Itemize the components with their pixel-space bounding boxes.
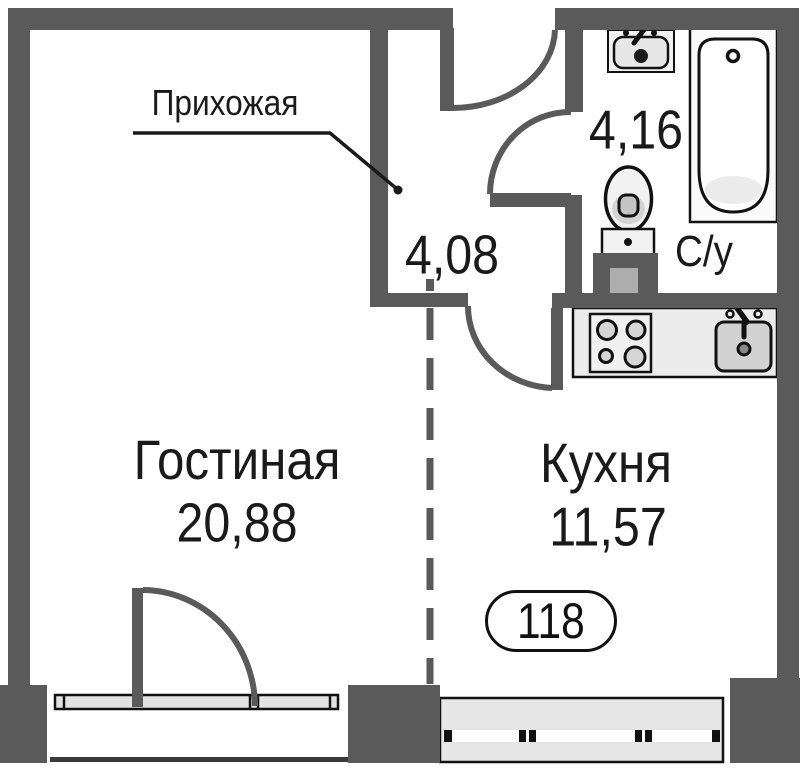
wall-outer-left: [8, 8, 30, 763]
kitchen-label: Кухня: [540, 435, 672, 491]
wall-bathroom-upper: [565, 28, 583, 112]
entrance-door: [440, 28, 555, 111]
wall-outer-right: [777, 8, 799, 763]
window-tick: [444, 730, 452, 742]
loggia-outline: [50, 757, 348, 762]
kitchen-door-leaf: [551, 308, 563, 390]
wall-hall-bottom: [370, 293, 468, 307]
bathroom-door: [490, 112, 571, 207]
washbasin-icon: [608, 27, 674, 72]
wall-outer-top-right: [555, 8, 799, 30]
entrance-door-arc: [453, 30, 555, 108]
window-tick: [529, 730, 536, 742]
pier-bottom-left: [0, 685, 47, 763]
pier-bottom-right: [730, 678, 800, 763]
bathroom-door-arc: [490, 112, 571, 194]
floor-plan-drawing: [0, 0, 807, 768]
window-tick: [635, 730, 642, 742]
kitchen-door: [468, 306, 563, 390]
apartment-number-badge: 118: [485, 590, 617, 652]
balcony-door: [132, 588, 255, 707]
living-room-area: 20,88: [176, 496, 297, 551]
pier-bottom-middle: [348, 685, 440, 763]
window-tick: [645, 730, 652, 742]
kitchen-area: 11,57: [549, 500, 667, 555]
stove-icon: [590, 314, 651, 372]
toilet-icon: [602, 167, 654, 255]
hallway-leader-dot: [394, 186, 403, 195]
kitchen-window: [440, 698, 723, 762]
bathroom-label: С/у: [675, 230, 733, 274]
wall-hall-partition: [370, 25, 388, 307]
living-room-label: Гостиная: [134, 432, 341, 488]
bathroom-area: 4,16: [589, 103, 683, 158]
vent-shaft-inner: [610, 268, 638, 296]
floor-plan: Прихожая 4,08 4,16 С/у Гостиная 20,88 Ку…: [0, 0, 807, 768]
apartment-number: 118: [517, 596, 585, 646]
balcony-door-leaf: [132, 588, 143, 707]
bathtub-icon: [690, 28, 777, 222]
hallway-leader-line: [133, 133, 397, 189]
wall-kitchen-bathroom: [552, 293, 799, 308]
kitchen-window-stripe: [443, 730, 720, 742]
kitchen-door-arc: [468, 306, 552, 388]
window-tick: [712, 730, 720, 742]
window-tick: [519, 730, 526, 742]
hallway-label: Прихожая: [152, 85, 299, 121]
living-room-window-frame: [55, 695, 338, 709]
balcony-door-arc: [143, 590, 255, 706]
wall-bathroom-lower: [565, 195, 582, 293]
living-room-window: [55, 695, 338, 709]
bathroom-door-leaf: [490, 193, 571, 207]
hallway-area: 4,08: [405, 228, 499, 283]
entrance-door-leaf: [440, 28, 454, 111]
